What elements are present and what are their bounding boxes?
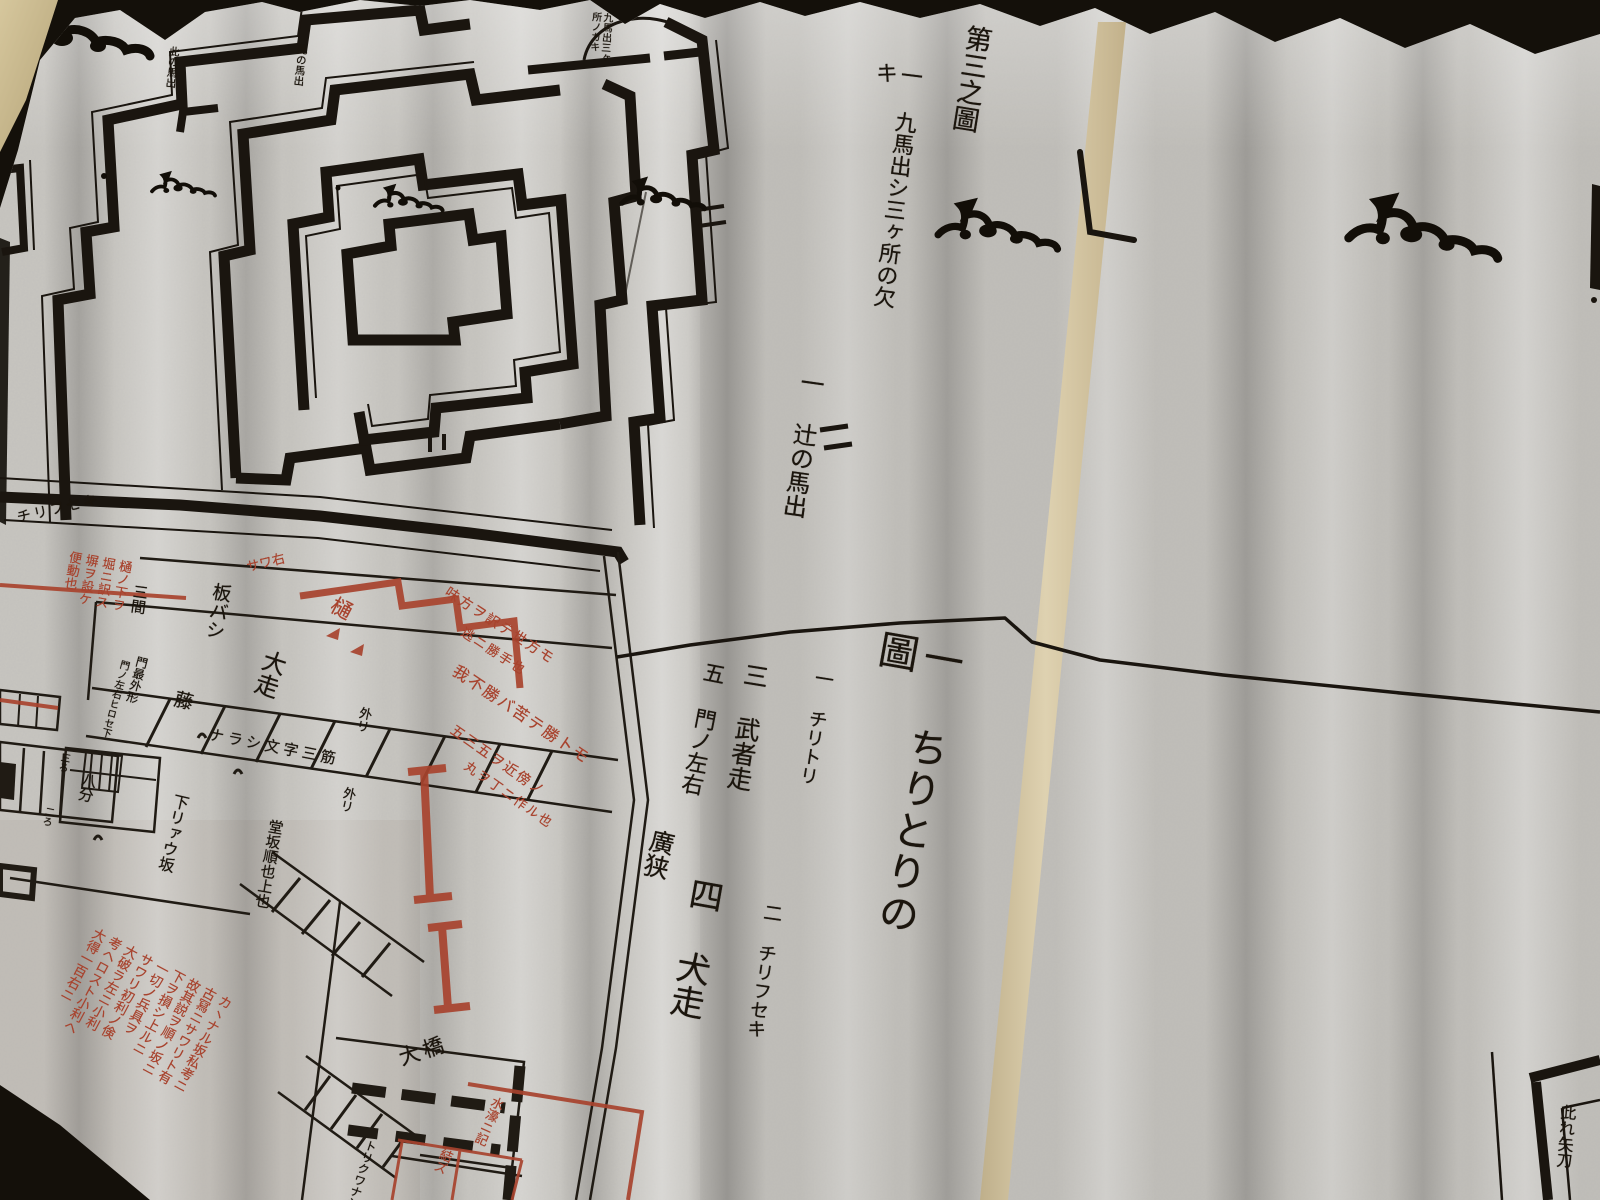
red-gloss-box: 樋ノ下ヲ 堀ニ訳ス 塀ヲ設ケ 便動也 — [0, 541, 132, 664]
balloon-label: 九馬出三ヶ所ノカキ — [586, 11, 612, 68]
photo-folded-castle-map: 第三之圖 一 九馬出シ三ヶ所の欠キ 一 辻の馬出 一 ちりとりの圖 一 チリトリ… — [0, 0, 1600, 1200]
fold-shading — [0, 0, 1600, 1200]
map-artwork — [0, 0, 1600, 1200]
